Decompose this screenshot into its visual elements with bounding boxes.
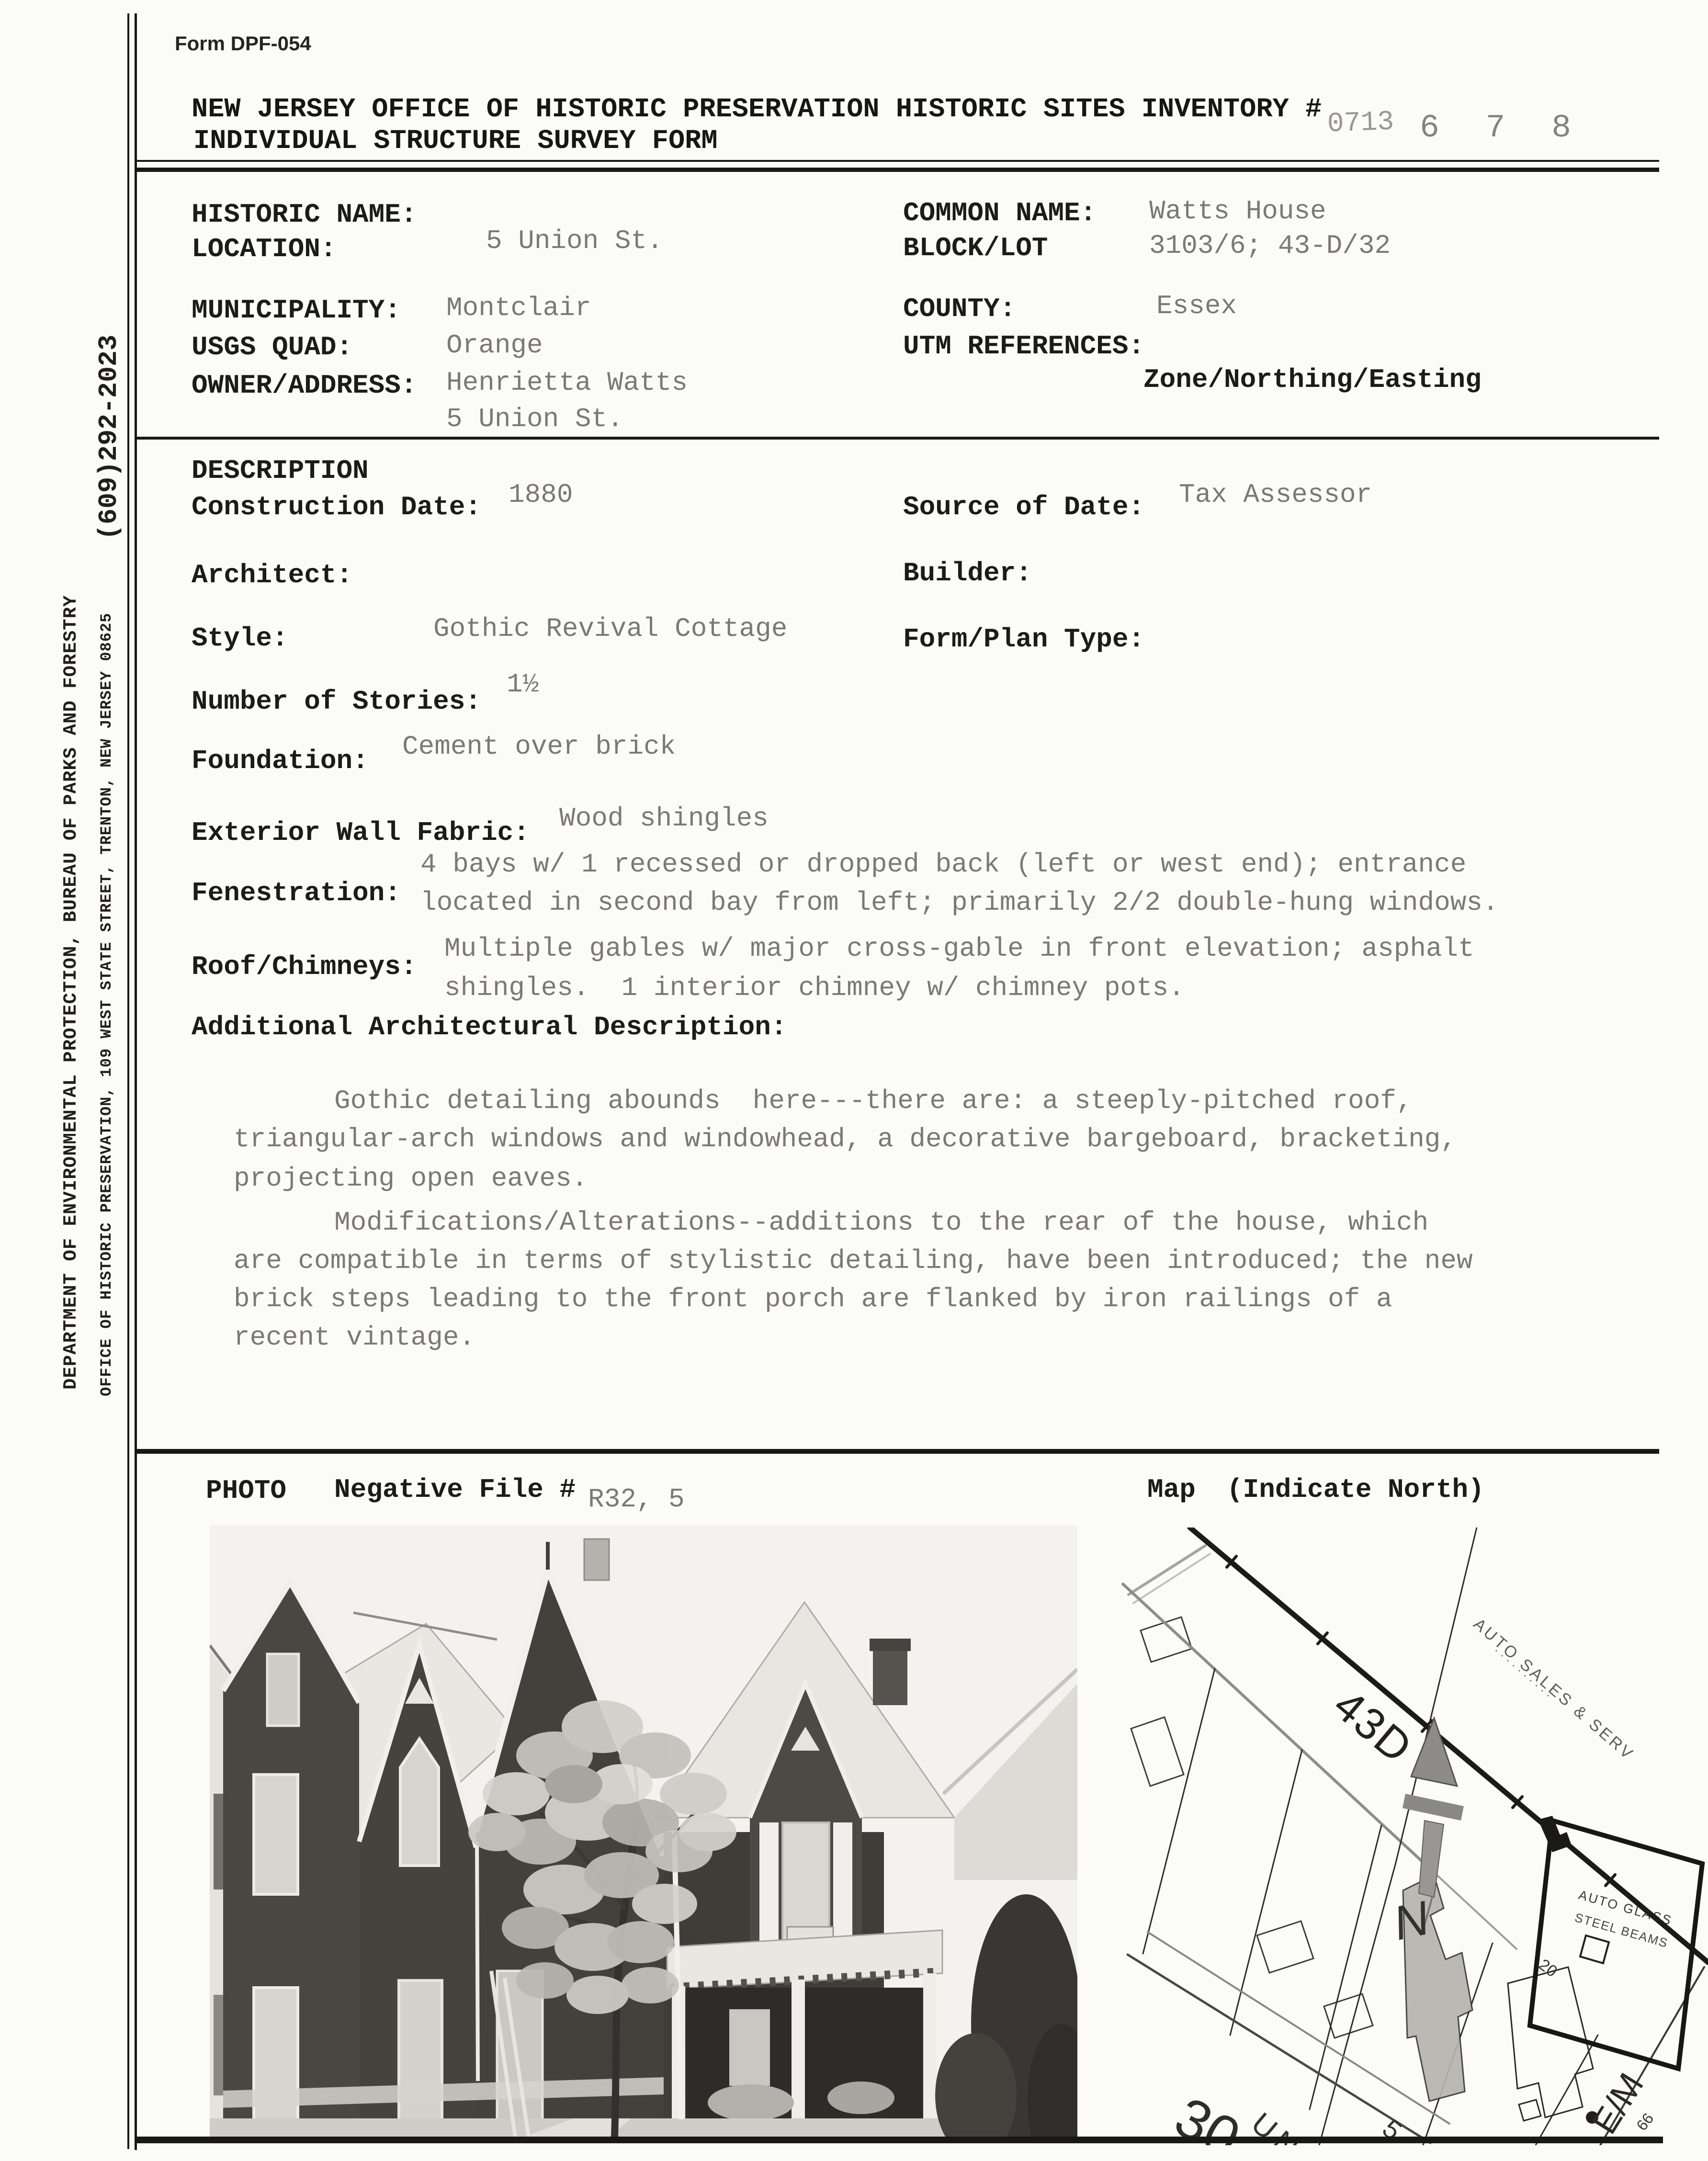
roof-chimneys-label: Roof/Chimneys: <box>192 951 417 983</box>
form-title-line1: NEW JERSEY OFFICE OF HISTORIC PRESERVATI… <box>192 94 1322 126</box>
utm-zone-label: Zone/Northing/Easting <box>1143 364 1482 396</box>
owner-address-label: OWNER/ADDRESS: <box>192 370 417 401</box>
style-value: Gothic Revival Cottage <box>433 613 787 645</box>
form-number: Form DPF-054 <box>175 32 311 56</box>
inventory-number-stamp-prefix: 0713 <box>1327 106 1395 141</box>
photo-label: PHOTO <box>206 1475 286 1506</box>
common-name-value: Watts House <box>1149 195 1326 227</box>
municipality-label: MUNICIPALITY: <box>192 294 401 326</box>
fenestration-value-line2: located in second bay from left; primari… <box>420 887 1499 918</box>
historic-name-label: HISTORIC NAME: <box>192 199 417 230</box>
additional-paragraph1-line2: triangular-arch windows and windowhead, … <box>234 1123 1457 1155</box>
architect-label: Architect: <box>192 559 352 591</box>
additional-paragraph2-line2: are compatible in terms of stylistic det… <box>234 1245 1473 1277</box>
map-note: (Indicate North) <box>1227 1474 1484 1505</box>
block-lot-label: BLOCK/LOT <box>903 232 1048 264</box>
survey-form-page: (609)292-2023 DEPARTMENT OF ENVIRONMENTA… <box>0 0 1708 2161</box>
bottom-border-rule <box>136 2137 1663 2143</box>
owner-address-value-line2: 5 Union St. <box>446 403 623 435</box>
left-border-outer <box>127 13 129 2149</box>
construction-date-value: 1880 <box>509 479 573 510</box>
additional-paragraph2-line4: recent vintage. <box>234 1322 475 1353</box>
builder-label: Builder: <box>903 557 1032 589</box>
county-label: COUNTY: <box>903 293 1016 325</box>
additional-paragraph1-line3: projecting open eaves. <box>234 1163 588 1194</box>
usgs-quad-value: Orange <box>446 329 543 361</box>
form-title-line2: INDIVIDUAL STRUCTURE SURVEY FORM <box>193 125 718 158</box>
additional-paragraph2-line3: brick steps leading to the front porch a… <box>234 1283 1392 1315</box>
description-rule <box>136 437 1659 440</box>
additional-paragraph1-line1: Gothic detailing abounds here---there ar… <box>334 1085 1413 1117</box>
wall-fabric-label: Exterior Wall Fabric: <box>192 817 530 849</box>
map-sketch: 43D AUTO SALES & SERV · · · · · · · · · … <box>1114 1527 1708 2145</box>
header-rule-thin <box>136 160 1659 162</box>
negative-file-label: Negative File # <box>334 1474 576 1505</box>
block-lot-value: 3103/6; 43-D/32 <box>1149 230 1391 261</box>
roof-value-line1: Multiple gables w/ major cross-gable in … <box>444 933 1474 964</box>
wall-fabric-value: Wood shingles <box>559 803 769 834</box>
fenestration-value-line1: 4 bays w/ 1 recessed or dropped back (le… <box>420 849 1466 880</box>
header-rule-thick <box>136 168 1659 172</box>
fenestration-label: Fenestration: <box>192 877 401 909</box>
left-border-inner <box>135 13 137 2150</box>
photo-section-rule <box>136 1449 1659 1454</box>
additional-description-label: Additional Architectural Description: <box>192 1011 787 1043</box>
construction-date-label: Construction Date: <box>192 491 481 523</box>
common-name-label: COMMON NAME: <box>903 197 1096 229</box>
utm-references-label: UTM REFERENCES: <box>903 330 1144 362</box>
sidebar-department: DEPARTMENT OF ENVIRONMENTAL PROTECTION, … <box>60 595 81 1390</box>
owner-address-value-line1: Henrietta Watts <box>446 367 688 398</box>
foundation-label: Foundation: <box>192 745 369 777</box>
usgs-quad-label: USGS QUAD: <box>192 331 352 363</box>
stories-value: 1½ <box>507 668 539 700</box>
form-plan-type-label: Form/Plan Type: <box>903 623 1144 655</box>
sidebar-phone: (609)292-2023 <box>94 335 124 540</box>
negative-file-value: R32, 5 <box>588 1483 685 1515</box>
house-photo <box>210 1526 1077 2143</box>
county-value: Essex <box>1156 290 1237 322</box>
style-label: Style: <box>192 622 288 654</box>
sidebar-office: OFFICE OF HISTORIC PRESERVATION, 109 WES… <box>98 613 115 1396</box>
description-section-label: DESCRIPTION <box>192 455 369 487</box>
roof-value-line2: shingles. 1 interior chimney w/ chimney … <box>444 972 1185 1004</box>
additional-paragraph2-line1: Modifications/Alterations--additions to … <box>334 1207 1428 1238</box>
foundation-value: Cement over brick <box>402 731 676 762</box>
inventory-number-stamp-suffix: 6 7 8 <box>1420 109 1584 147</box>
source-of-date-value: Tax Assessor <box>1179 479 1372 510</box>
location-label: LOCATION: <box>192 233 336 265</box>
municipality-value: Montclair <box>446 292 591 324</box>
location-value: 5 Union St. <box>486 225 663 257</box>
source-of-date-label: Source of Date: <box>903 491 1144 523</box>
stories-label: Number of Stories: <box>192 686 481 717</box>
map-label: Map <box>1147 1474 1196 1505</box>
